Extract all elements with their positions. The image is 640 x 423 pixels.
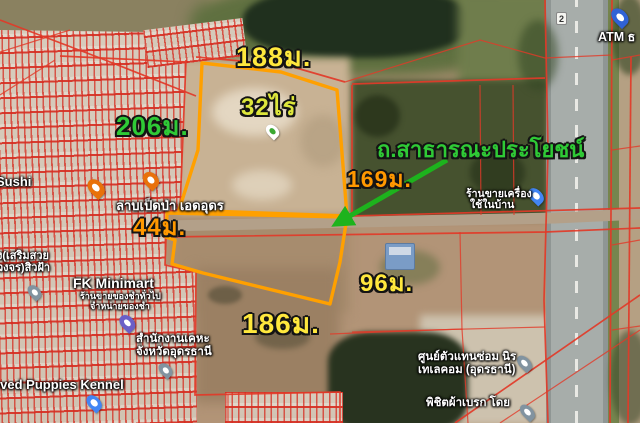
housing-office-label-line2[interactable]: จังหวัดอุดรธานี bbox=[136, 346, 212, 359]
measurement-left: 206ม. bbox=[116, 113, 189, 139]
measurement-mid-right: 96ม. bbox=[360, 272, 413, 296]
sushi-label[interactable]: Sushi bbox=[0, 175, 31, 189]
salon-shop-pin[interactable] bbox=[27, 284, 43, 307]
cadastral-lines bbox=[0, 0, 640, 423]
office-building-pin[interactable] bbox=[118, 314, 136, 340]
pin-icon bbox=[264, 122, 282, 140]
route-marker-badge: 2 bbox=[556, 12, 567, 25]
salon-label-line2[interactable]: วงจร)สิวฝ้า bbox=[0, 262, 50, 274]
housing-office-label-line1[interactable]: สำนักงานเคหะ bbox=[136, 333, 210, 346]
repair-center-label-line2[interactable]: เทเลคอม (อุดรธานี) bbox=[418, 364, 515, 377]
plot-center-marker-pin[interactable] bbox=[265, 124, 280, 145]
pin-icon bbox=[140, 169, 163, 192]
pin-icon bbox=[156, 360, 175, 379]
measurement-right: 169ม. bbox=[347, 168, 412, 191]
duck-restaurant-pin[interactable] bbox=[141, 171, 161, 197]
pin-icon bbox=[84, 176, 108, 200]
pin-icon bbox=[116, 312, 138, 334]
household-store-label-line2[interactable]: ใช้ในบ้าน bbox=[470, 200, 514, 212]
pin-icon bbox=[518, 402, 539, 423]
map-line-overlay bbox=[0, 0, 640, 423]
pin-icon bbox=[83, 392, 104, 413]
minimart-label[interactable]: FK Minimart bbox=[73, 276, 154, 291]
repair-center-label-line1[interactable]: ศูนย์ตัวแทนซ่อม นิร bbox=[418, 351, 516, 364]
road-name-label: ถ.สาธารณะประโยชน์ bbox=[377, 139, 584, 161]
pin-icon bbox=[608, 5, 632, 29]
satellite-map-canvas[interactable]: 188ม. 32ไร่ 206ม. 44ม. ถ.สาธารณะประโยชน์… bbox=[0, 0, 640, 423]
measurement-left-small: 44ม. bbox=[133, 216, 186, 240]
duck-restaurant-label[interactable]: ลาบเป็ดป่า เอดอุดร bbox=[116, 199, 224, 213]
measurement-bottom: 186ม. bbox=[242, 310, 320, 338]
sushi-restaurant-pin[interactable] bbox=[86, 178, 106, 206]
brake-shop-pin[interactable] bbox=[520, 403, 536, 423]
kennel-label[interactable]: Beloved Puppies Kennel bbox=[0, 378, 124, 392]
housing-office-pin[interactable] bbox=[158, 362, 174, 385]
measurement-top: 188ม. bbox=[236, 44, 311, 71]
pin-icon bbox=[515, 353, 536, 374]
pin-icon bbox=[25, 282, 44, 301]
kennel-pin[interactable] bbox=[85, 394, 102, 419]
minimart-sub-line2: จำหน่ายของชำ bbox=[90, 302, 150, 312]
atm-label[interactable]: ATM ธ bbox=[598, 31, 635, 45]
plot-area-label: 32ไร่ bbox=[241, 96, 297, 120]
salon-label-line1[interactable]: ง(เสริมสวย bbox=[0, 250, 49, 262]
repair-center-pin[interactable] bbox=[517, 354, 533, 380]
brake-shop-label-line1[interactable]: พิชิตผ้าเบรก โดย bbox=[426, 397, 510, 410]
